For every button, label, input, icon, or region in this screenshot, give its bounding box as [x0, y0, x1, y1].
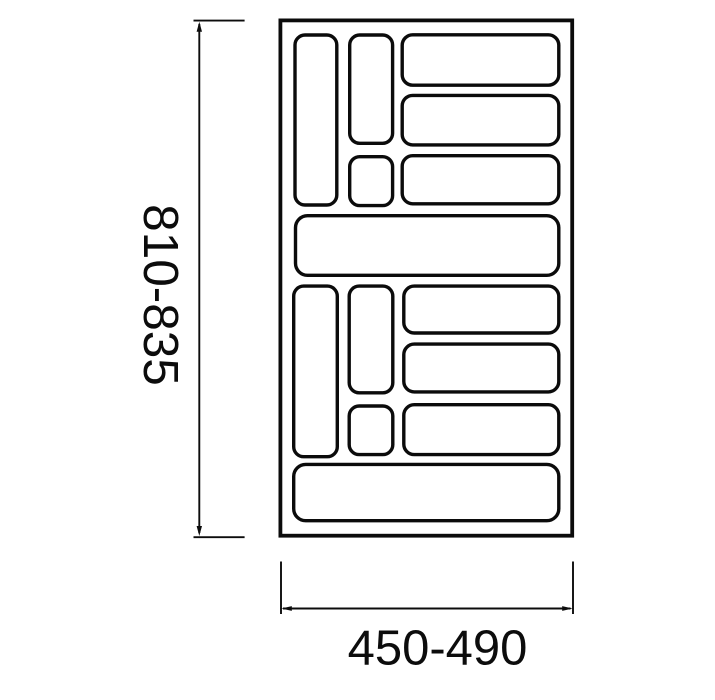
svg-text:450-490: 450-490 — [348, 622, 528, 676]
svg-text:810-835: 810-835 — [133, 204, 188, 386]
